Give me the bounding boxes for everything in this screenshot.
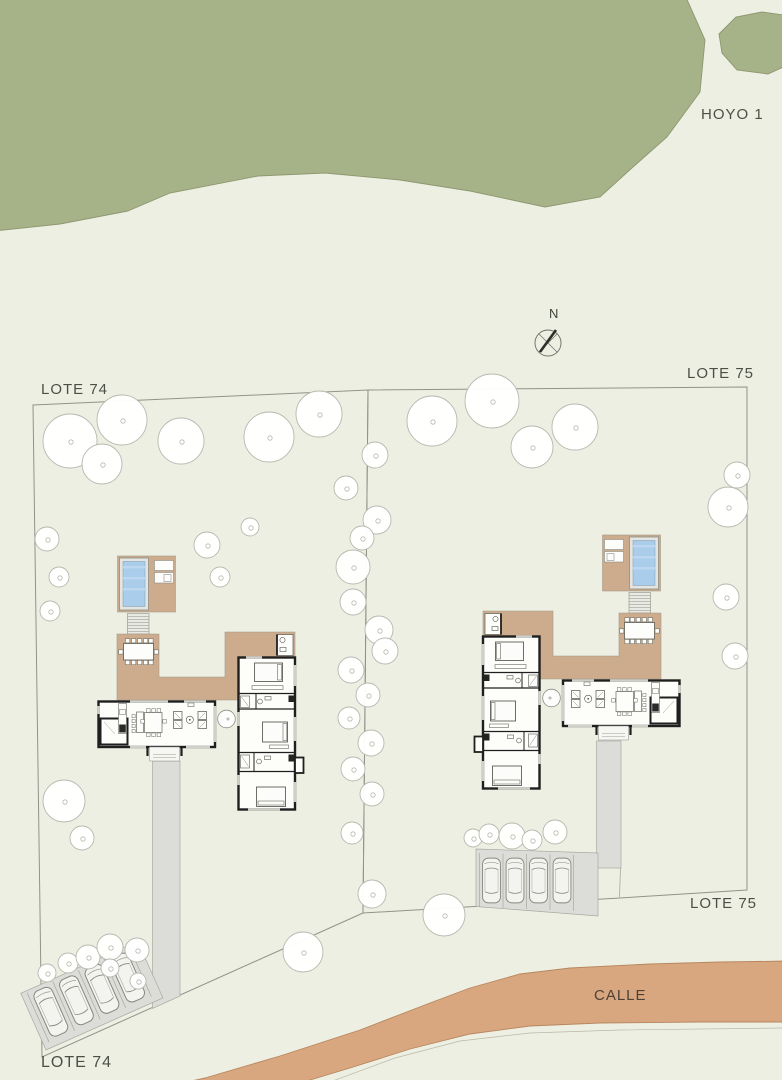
street-surface: [150, 961, 782, 1080]
tree: [296, 391, 342, 437]
tree: [341, 757, 365, 781]
tree: [336, 550, 370, 584]
lot-74-label-top: LOTE 74: [41, 381, 108, 398]
tree: [362, 442, 388, 468]
site-plan-svg: [0, 0, 782, 1080]
tree: [97, 395, 147, 445]
parked-car: [553, 858, 571, 903]
tree: [194, 532, 220, 558]
tree: [244, 412, 294, 462]
golf-green-shape: [0, 0, 705, 231]
street: [150, 961, 782, 1080]
tree: [479, 824, 499, 844]
tree: [125, 938, 149, 962]
site-plan: HOYO 1 LOTE 74 LOTE 75 LOTE 75 LOTE 74 C…: [0, 0, 782, 1080]
north-label: N: [549, 306, 558, 321]
tree: [40, 601, 60, 621]
tree: [97, 934, 123, 960]
tree: [338, 707, 360, 729]
tree: [130, 973, 146, 989]
tree: [35, 527, 59, 551]
tree: [70, 826, 94, 850]
tree: [38, 964, 56, 982]
north-compass: [535, 330, 561, 356]
tree: [499, 823, 525, 849]
golf-course-area: [0, 0, 782, 231]
tree: [358, 730, 384, 756]
tree: [552, 404, 598, 450]
tree: [708, 487, 748, 527]
tree: [356, 683, 380, 707]
tree: [724, 462, 750, 488]
house-lot-74: [99, 556, 304, 810]
tree: [241, 518, 259, 536]
tree: [58, 953, 78, 973]
tree: [76, 945, 100, 969]
tree: [334, 476, 358, 500]
parked-car: [530, 858, 548, 903]
tree: [511, 426, 553, 468]
lot-75-label-top: LOTE 75: [687, 365, 754, 382]
golf-hole-label: HOYO 1: [701, 106, 764, 123]
tree: [423, 894, 465, 936]
golf-green-blob: [719, 12, 782, 74]
tree: [713, 584, 739, 610]
tree: [358, 880, 386, 908]
tree: [283, 932, 323, 972]
tree: [522, 830, 542, 850]
tree: [82, 444, 122, 484]
tree: [340, 589, 366, 615]
tree: [210, 567, 230, 587]
parked-car: [483, 858, 501, 903]
tree: [49, 567, 69, 587]
tree: [372, 638, 398, 664]
street-label: CALLE: [594, 987, 647, 1004]
house-lot-75: [475, 535, 680, 789]
tree: [722, 643, 748, 669]
tree: [101, 959, 119, 977]
tree: [360, 782, 384, 806]
tree: [338, 657, 364, 683]
tree: [158, 418, 204, 464]
tree: [543, 820, 567, 844]
tree: [341, 822, 363, 844]
tree: [465, 374, 519, 428]
parked-car: [506, 858, 524, 903]
tree: [407, 396, 457, 446]
tree: [43, 780, 85, 822]
lot-75-label-bottom: LOTE 75: [690, 895, 757, 912]
lot-74-label-bottom: LOTE 74: [41, 1054, 112, 1072]
tree: [350, 526, 374, 550]
